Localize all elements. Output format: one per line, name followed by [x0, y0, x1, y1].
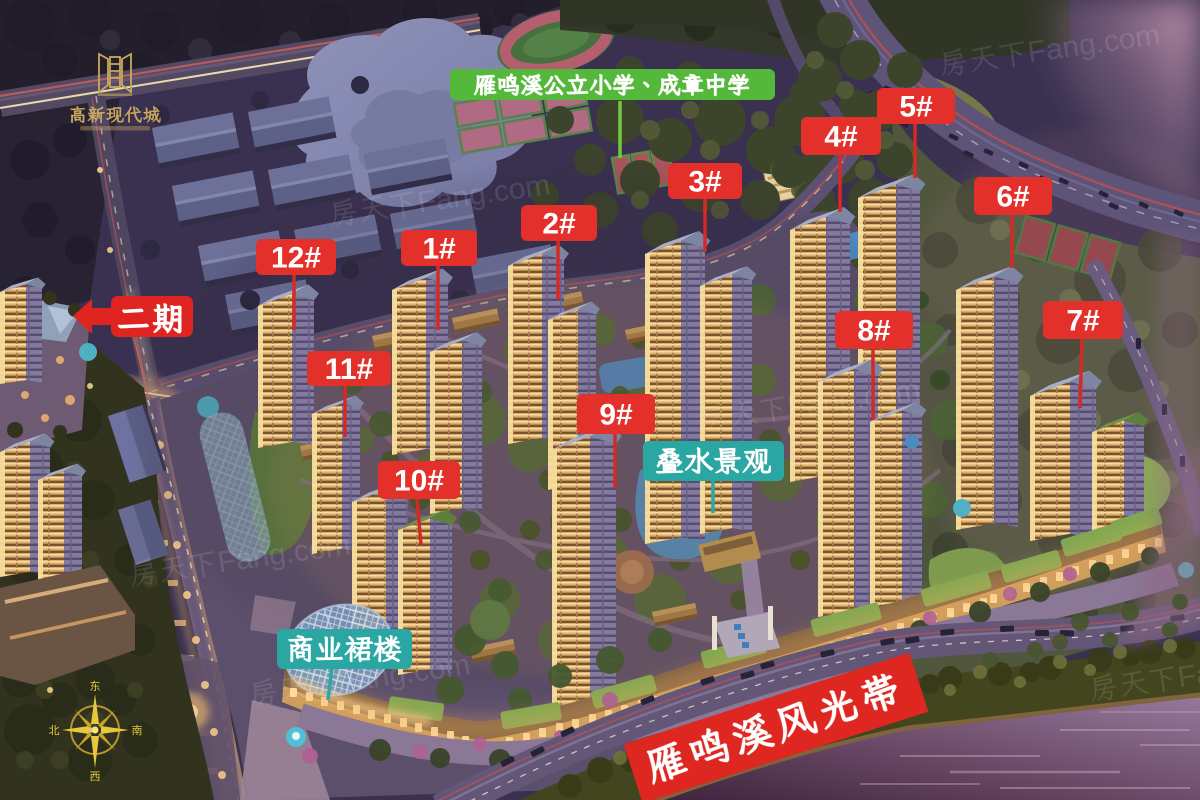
svg-text:8#: 8# — [857, 315, 891, 348]
svg-text:5#: 5# — [899, 91, 933, 124]
svg-text:7#: 7# — [1066, 305, 1100, 338]
svg-text:西: 西 — [90, 771, 101, 783]
svg-text:北: 北 — [49, 724, 60, 737]
svg-text:12#: 12# — [271, 242, 321, 275]
svg-text:叠水景观: 叠水景观 — [655, 442, 771, 480]
svg-text:东: 东 — [90, 680, 101, 693]
svg-text:商业裙楼: 商业裙楼 — [286, 630, 402, 668]
svg-text:3#: 3# — [688, 166, 722, 199]
svg-text:11#: 11# — [325, 353, 374, 386]
svg-text:9#: 9# — [599, 399, 633, 432]
svg-text:4#: 4# — [824, 121, 858, 154]
svg-text:南: 南 — [132, 724, 143, 737]
svg-text:二期: 二期 — [117, 297, 187, 340]
svg-text:6#: 6# — [996, 181, 1030, 214]
svg-text:1#: 1# — [422, 233, 456, 266]
svg-text:2#: 2# — [542, 208, 576, 241]
svg-text:10#: 10# — [394, 465, 444, 498]
svg-text:雁鸣溪公立小学、成章中学: 雁鸣溪公立小学、成章中学 — [474, 69, 750, 100]
svg-text:高新现代城: 高新现代城 — [69, 103, 162, 127]
